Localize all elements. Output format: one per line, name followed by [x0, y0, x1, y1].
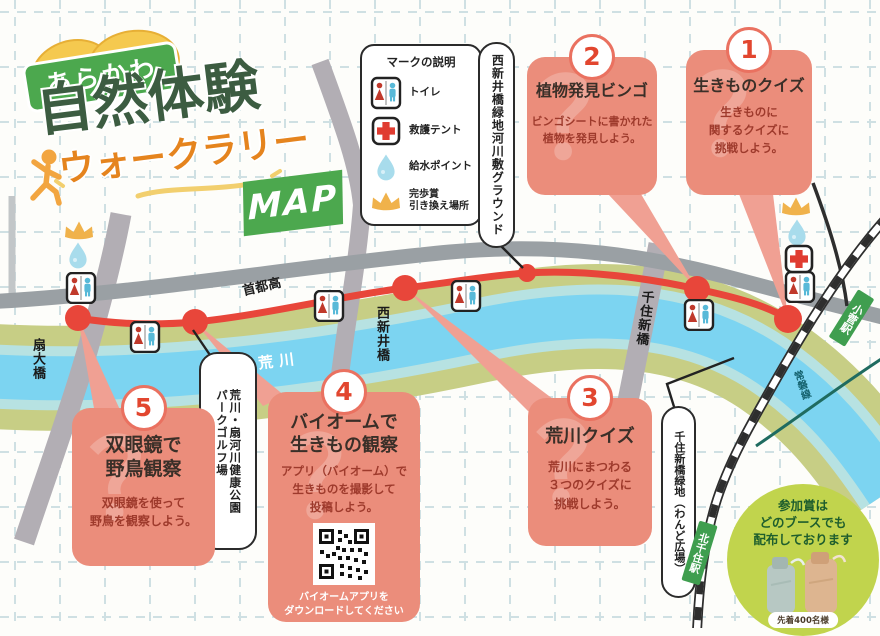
legend-item-label: 完歩賞 引き換え場所	[409, 189, 469, 214]
legend-title: マークの説明	[362, 54, 480, 70]
prize-crown-icon	[370, 188, 402, 214]
station-description: 双眼鏡を使って 野鳥を観察しよう。	[72, 494, 215, 531]
station-description: アプリ（バイオーム）で 生きものを撮影して 投稿しよう。	[268, 463, 420, 516]
legend-item: 完歩賞 引き換え場所	[362, 188, 480, 214]
toilet-icon	[313, 290, 345, 322]
toilet-icon	[129, 321, 161, 353]
station-number-badge: 1	[726, 27, 772, 73]
prize-note: 先着400名様	[768, 612, 838, 628]
legend-item-label: 救護テント	[409, 124, 462, 137]
station-callout-2: ？ 2 植物発見ビンゴ ビンゴシートに書かれた 植物を発見しよう。	[527, 57, 657, 195]
station-callout-1: ？ 1 生きものクイズ 生きものに 関するクイズに 挑戦しよう。	[686, 50, 812, 195]
legend-item: 給水ポイント	[362, 152, 480, 182]
station-number-badge: 3	[567, 375, 613, 421]
station-callout-4: ？ 4 バイオームで 生きもの観察 アプリ（バイオーム）で 生きものを撮影して …	[268, 392, 420, 622]
station-description: 生きものに 関するクイズに 挑戦しよう。	[686, 104, 812, 157]
legend-box: マークの説明 トイレ 救護テント 給水ポイント 完歩賞 引き換え場所	[360, 44, 482, 226]
bridge-label-ogi: 扇大橋	[28, 338, 47, 380]
station-description: ビンゴシートに書かれた 植物を発見しよう。	[527, 113, 657, 147]
prize-crown-icon	[781, 194, 811, 218]
toilet-icon	[784, 271, 816, 303]
station-number-badge: 2	[569, 34, 615, 80]
park-label: 荒川・扇河川健康公園 パークゴルフ場	[215, 389, 241, 514]
water-point-icon	[370, 152, 402, 182]
legend-item-label: トイレ	[409, 86, 441, 99]
station-number-badge: 5	[121, 385, 167, 431]
participation-prize-badge: 参加賞は どのブースでも 配布しております 先着400名様	[727, 484, 879, 636]
water-point-icon	[782, 217, 812, 247]
wando-label: 千住新橋緑地（わんど広場）	[672, 431, 685, 574]
prize-crown-icon	[64, 218, 94, 242]
station-callout-3: ？ 3 荒川クイズ 荒川にまつわる ３つのクイズに 挑戦しよう。	[528, 398, 652, 546]
toilet-icon	[683, 299, 715, 331]
prize-text: 参加賞は どのブースでも 配布しております	[727, 498, 879, 549]
toilet-icon	[450, 280, 482, 312]
legend-item: トイレ	[362, 76, 480, 110]
toilet-icon	[65, 272, 97, 304]
station-number-badge: 4	[321, 369, 367, 415]
qr-code	[313, 523, 375, 585]
ground-label: 西新井橋緑地河川敷グラウンド	[490, 54, 504, 236]
station-description: 荒川にまつわる ３つのクイズに 挑戦しよう。	[528, 458, 652, 514]
water-point-icon	[63, 240, 93, 270]
station-title: バイオームで 生きもの観察	[268, 412, 420, 457]
label-pill-ground: 西新井橋緑地河川敷グラウンド	[478, 42, 515, 248]
first-aid-tent-icon	[784, 244, 814, 274]
first-aid-tent-icon	[370, 116, 402, 146]
station-title: 荒川クイズ	[528, 426, 652, 449]
station-callout-5: ？ 5 双眼鏡で 野鳥観察 双眼鏡を使って 野鳥を観察しよう。	[72, 408, 215, 566]
station-title: 双眼鏡で 野鳥観察	[72, 434, 215, 482]
prize-bottles-image	[755, 551, 851, 615]
qr-caption: バイオームアプリを ダウンロードしてください	[268, 591, 420, 618]
legend-item-label: 給水ポイント	[409, 160, 472, 173]
toilet-icon	[370, 76, 402, 110]
bridge-label-nishiarai: 西新井橋	[372, 306, 391, 362]
legend-item: 救護テント	[362, 116, 480, 146]
station-title: 生きものクイズ	[686, 76, 812, 96]
station-title: 植物発見ビンゴ	[527, 81, 657, 101]
